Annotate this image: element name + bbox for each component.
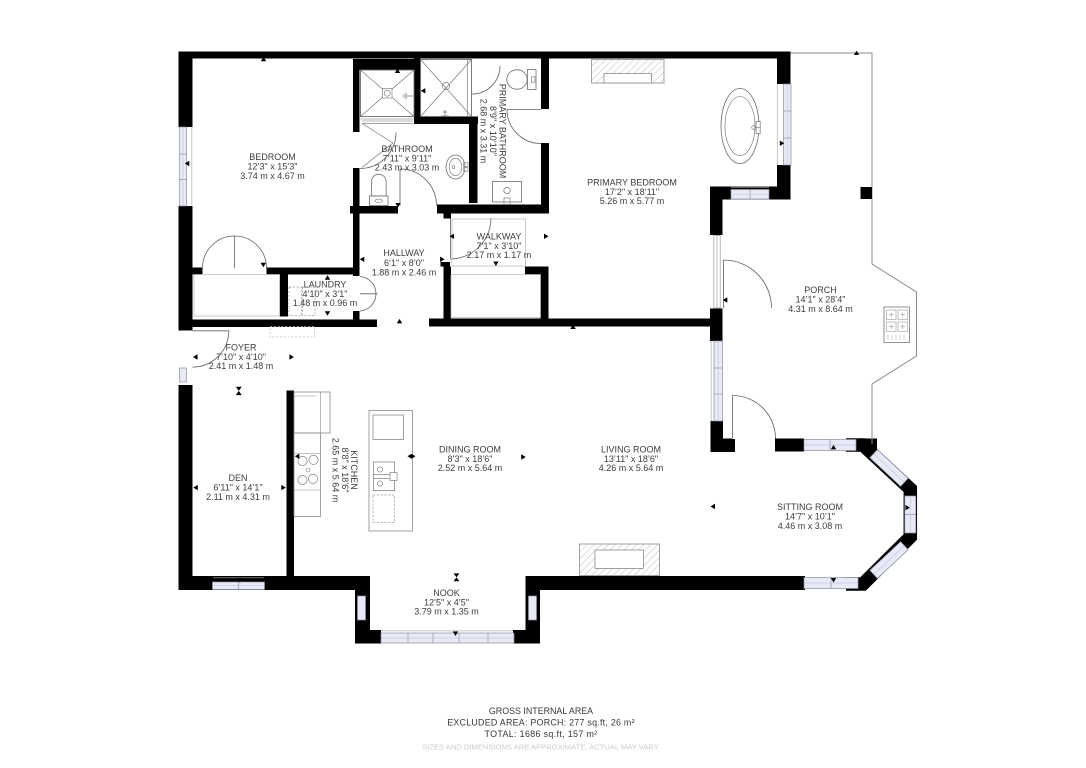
svg-text:6’11" x 14’1": 6’11" x 14’1" (213, 483, 262, 493)
svg-text:2.65 m x 5.64 m: 2.65 m x 5.64 m (330, 438, 340, 503)
svg-text:1.48 m x 0.96 m: 1.48 m x 0.96 m (293, 298, 358, 308)
svg-text:SITTING ROOM: SITTING ROOM (777, 502, 843, 512)
svg-text:PRIMARY BATHROOM: PRIMARY BATHROOM (497, 84, 507, 179)
svg-text:5.26 m x 5.77 m: 5.26 m x 5.77 m (600, 196, 665, 206)
svg-text:DEN: DEN (228, 473, 247, 483)
svg-text:1.88 m x 2.46 m: 1.88 m x 2.46 m (372, 267, 437, 277)
svg-text:SIZES AND DIMENSIONS ARE APPRO: SIZES AND DIMENSIONS ARE APPROXIMATE, AC… (422, 742, 660, 751)
svg-text:BEDROOM: BEDROOM (249, 152, 296, 162)
svg-text:14’7" x 10’1": 14’7" x 10’1" (785, 512, 835, 522)
svg-text:3.79 m x 1.35 m: 3.79 m x 1.35 m (414, 607, 479, 617)
svg-text:TOTAL: 1686 sq.ft, 157 m²: TOTAL: 1686 sq.ft, 157 m² (485, 729, 598, 739)
svg-text:14’1" x 28’4": 14’1" x 28’4" (796, 295, 846, 305)
svg-text:6’1" x 8’0": 6’1" x 8’0" (384, 258, 424, 268)
svg-text:GROSS INTERNAL AREA: GROSS INTERNAL AREA (489, 706, 593, 716)
svg-text:2.11 m x 4.31 m: 2.11 m x 4.31 m (206, 492, 270, 502)
svg-text:8’9" x 10’10": 8’9" x 10’10" (488, 106, 498, 156)
svg-text:HALLWAY: HALLWAY (383, 248, 424, 258)
svg-text:EXCLUDED AREA: PORCH: 277 sq.f: EXCLUDED AREA: PORCH: 277 sq.ft, 26 m² (447, 718, 635, 728)
svg-text:4.46 m x 3.08 m: 4.46 m x 3.08 m (778, 521, 843, 531)
svg-text:3.74 m x 4.67 m: 3.74 m x 4.67 m (240, 171, 305, 181)
svg-text:2.41 m x 1.48 m: 2.41 m x 1.48 m (209, 361, 274, 371)
svg-text:PORCH: PORCH (804, 285, 837, 295)
svg-text:2.68 m x 3.31 m: 2.68 m x 3.31 m (478, 99, 488, 164)
svg-text:2.43 m x 3.03 m: 2.43 m x 3.03 m (375, 163, 440, 173)
svg-text:4.26 m x 5.64 m: 4.26 m x 5.64 m (599, 463, 664, 473)
svg-text:2.52 m x 5.64 m: 2.52 m x 5.64 m (438, 463, 503, 473)
svg-text:2.17 m x 1.17 m: 2.17 m x 1.17 m (467, 250, 532, 260)
svg-text:12’3" x 15’3": 12’3" x 15’3" (248, 162, 298, 172)
svg-text:4.31 m x 8.64 m: 4.31 m x 8.64 m (788, 304, 853, 314)
